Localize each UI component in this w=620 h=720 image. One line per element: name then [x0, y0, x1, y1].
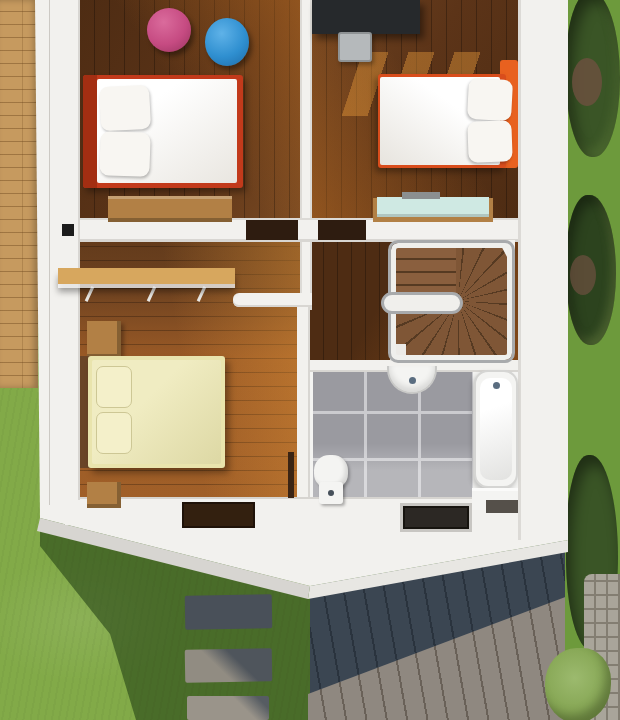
sink-faucet	[409, 377, 416, 384]
door-mat-brown	[182, 502, 255, 528]
toilet-flush-button	[328, 490, 334, 496]
pink-bean-bag	[147, 8, 191, 52]
wooden-dresser	[108, 196, 232, 222]
wall-bedroom3-east	[297, 307, 310, 497]
door-mat-dark	[400, 503, 472, 532]
light-green-bush	[545, 648, 611, 720]
pillow	[96, 412, 132, 454]
bench-shadow	[486, 500, 518, 513]
floor-plan-scene	[0, 0, 620, 720]
black-desk	[312, 0, 420, 34]
dresser-object	[402, 192, 440, 199]
wall-east	[518, 0, 568, 540]
bed-red-headboard	[83, 75, 97, 188]
wall-switch	[62, 224, 74, 236]
stepping-stone-1	[185, 594, 273, 630]
pillow	[467, 120, 512, 163]
doorway-bedroom-top-right	[318, 220, 366, 240]
stepping-stone-3	[187, 696, 269, 720]
bathtub-drain	[493, 382, 500, 389]
flower-patch	[570, 255, 596, 295]
pillow	[99, 85, 151, 132]
pillow	[96, 366, 132, 408]
teal-dresser-top	[377, 197, 489, 217]
doorway-bedroom-top-left	[246, 220, 298, 240]
nightstand	[87, 482, 121, 508]
flower-patch	[572, 58, 602, 106]
pillow	[467, 78, 513, 121]
blue-bean-bag	[205, 18, 249, 66]
stair-inner-railing	[381, 292, 463, 314]
wood-deck	[0, 0, 38, 388]
stepping-stone-2	[185, 648, 273, 683]
bathtub-basin	[480, 378, 512, 480]
wall-west	[65, 0, 80, 500]
wall-seam	[49, 0, 50, 505]
pillow	[99, 131, 151, 177]
wall-bedroom-divider	[300, 0, 312, 310]
desk-chair	[338, 32, 372, 62]
open-door-leaf	[288, 452, 294, 498]
nightstand	[87, 321, 121, 358]
wall-shelf	[58, 268, 235, 284]
wall-bedroom3-north	[233, 293, 312, 307]
